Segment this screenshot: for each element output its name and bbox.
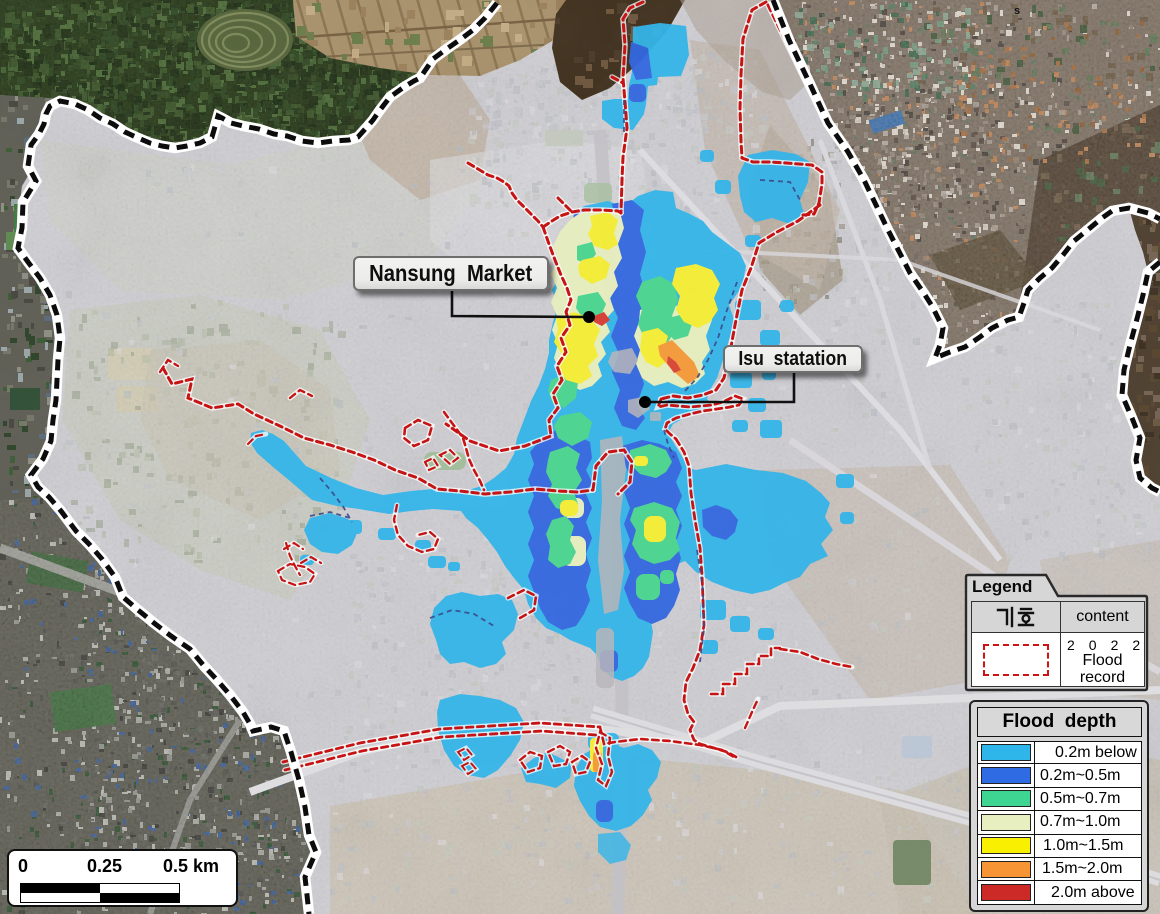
svg-text:s: s <box>1014 5 1020 17</box>
